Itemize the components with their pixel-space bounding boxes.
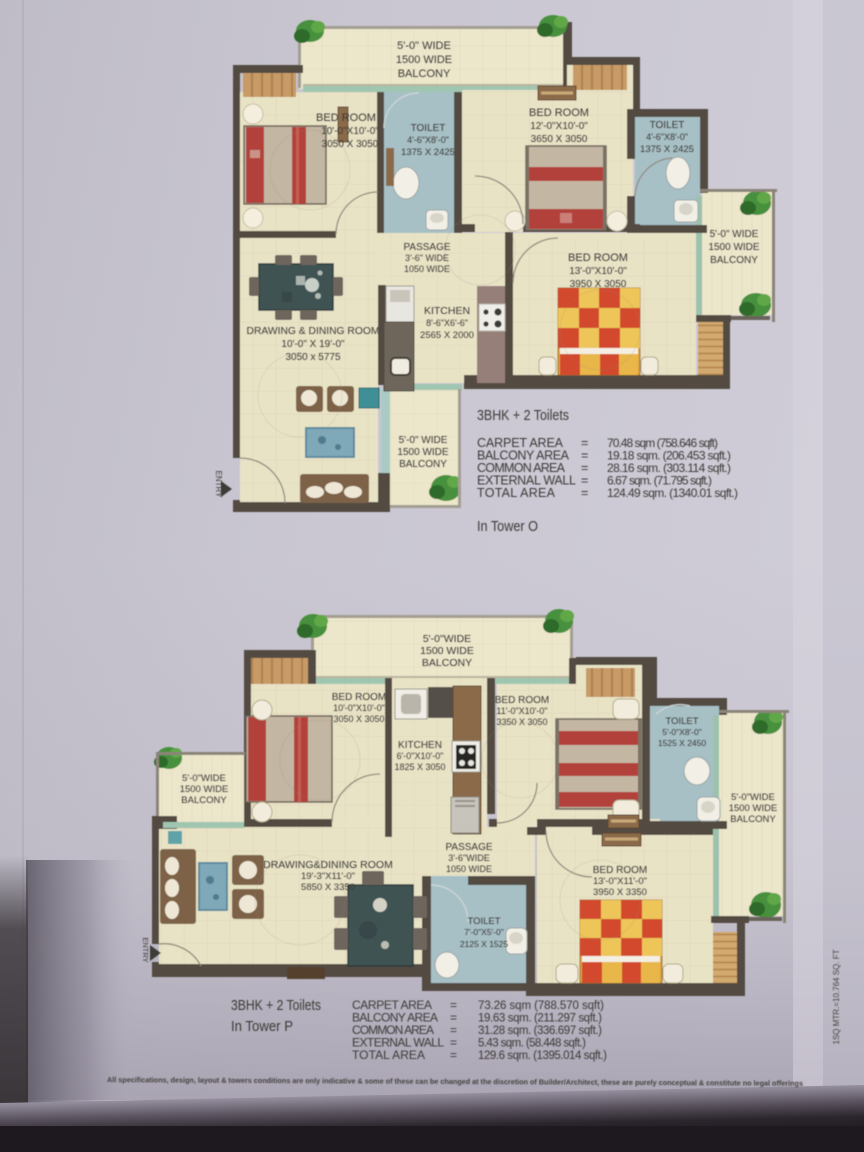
svg-text:TOILET: TOILET bbox=[665, 716, 698, 727]
svg-text:5.43 sqm. (58.448 sqft.): 5.43 sqm. (58.448 sqft.) bbox=[478, 1038, 586, 1050]
svg-text:3050 x 5775: 3050 x 5775 bbox=[285, 352, 340, 363]
svg-text:BED ROOM: BED ROOM bbox=[568, 252, 628, 264]
svg-text:11'-0"X10'-0": 11'-0"X10'-0" bbox=[496, 706, 547, 716]
svg-text:BED ROOM: BED ROOM bbox=[593, 865, 647, 876]
svg-text:3350 X 3050: 3350 X 3050 bbox=[496, 717, 547, 727]
svg-text:5'-0" WIDE: 5'-0" WIDE bbox=[397, 40, 451, 52]
svg-text:10'-0"X10'-0": 10'-0"X10'-0" bbox=[333, 703, 385, 713]
svg-text:3BHK + 2 Toilets: 3BHK + 2 Toilets bbox=[231, 997, 321, 1014]
svg-text:TOILET: TOILET bbox=[411, 123, 446, 134]
svg-text:1SQ MTR.=10.764 SQ. FT: 1SQ MTR.=10.764 SQ. FT bbox=[831, 950, 841, 1045]
svg-text:13'-0"X10'-0": 13'-0"X10'-0" bbox=[569, 266, 627, 277]
svg-text:BED ROOM: BED ROOM bbox=[495, 695, 549, 706]
svg-text:5'-0" WIDE: 5'-0" WIDE bbox=[710, 229, 759, 240]
svg-text:3'-6" WIDE: 3'-6" WIDE bbox=[405, 253, 449, 263]
svg-text:PASSAGE: PASSAGE bbox=[403, 242, 450, 253]
svg-text:1375 X 2425: 1375 X 2425 bbox=[640, 144, 694, 155]
svg-text:1500 WIDE: 1500 WIDE bbox=[729, 803, 778, 814]
svg-text:10'-0" X 19'-0": 10'-0" X 19'-0" bbox=[281, 339, 345, 350]
svg-text:1500 WIDE: 1500 WIDE bbox=[397, 447, 448, 458]
svg-text:DRAWING&DINING ROOM: DRAWING&DINING ROOM bbox=[263, 859, 393, 871]
svg-text:1500 WIDE: 1500 WIDE bbox=[396, 54, 452, 66]
svg-text:73.26 sqm (788.570 sqft): 73.26 sqm (788.570 sqft) bbox=[478, 1000, 604, 1012]
svg-text:1050 WIDE: 1050 WIDE bbox=[404, 264, 450, 274]
svg-text:19.63 sqm. (211.297 sqft.): 19.63 sqm. (211.297 sqft.) bbox=[478, 1013, 602, 1025]
svg-text:5'-0"WIDE: 5'-0"WIDE bbox=[731, 792, 775, 803]
svg-text:TOTAL AREA: TOTAL AREA bbox=[477, 486, 556, 500]
svg-text:=: = bbox=[581, 486, 588, 500]
svg-text:3050 X 3050: 3050 X 3050 bbox=[322, 139, 379, 150]
svg-text:1500 WIDE: 1500 WIDE bbox=[708, 242, 759, 253]
svg-text:1500 WIDE: 1500 WIDE bbox=[180, 784, 229, 795]
svg-text:1825 X 3050: 1825 X 3050 bbox=[394, 762, 445, 772]
svg-text:10'-0"X10'-0": 10'-0"X10'-0" bbox=[321, 126, 379, 137]
svg-text:DRAWING & DINING ROOM: DRAWING & DINING ROOM bbox=[247, 326, 380, 337]
svg-text:6'-0"X10'-0": 6'-0"X10'-0" bbox=[397, 751, 444, 761]
svg-text:3650 X 3050: 3650 X 3050 bbox=[531, 134, 588, 145]
svg-text:31.28 sqm. (336.697 sqft.): 31.28 sqm. (336.697 sqft.) bbox=[478, 1025, 602, 1037]
svg-text:In Tower O: In Tower O bbox=[477, 518, 538, 535]
svg-text:1500 WIDE: 1500 WIDE bbox=[420, 645, 474, 657]
svg-text:BALCONY: BALCONY bbox=[398, 68, 451, 80]
svg-text:=: = bbox=[450, 1048, 457, 1062]
svg-text:BALCONY: BALCONY bbox=[422, 657, 472, 669]
svg-text:124.49 sqm. (1340.01 sqft.): 124.49 sqm. (1340.01 sqft.) bbox=[607, 486, 738, 500]
svg-text:TOILET: TOILET bbox=[650, 120, 685, 131]
svg-text:ENTRY: ENTRY bbox=[214, 471, 223, 499]
svg-text:3950 X 3350: 3950 X 3350 bbox=[593, 887, 647, 898]
svg-text:2125 X 1525: 2125 X 1525 bbox=[460, 939, 508, 949]
svg-text:1525 X 2450: 1525 X 2450 bbox=[658, 738, 706, 748]
svg-text:2565 X 2000: 2565 X 2000 bbox=[420, 330, 474, 341]
svg-text:KITCHEN: KITCHEN bbox=[398, 740, 442, 751]
svg-text:BALCONY: BALCONY bbox=[181, 795, 227, 806]
svg-text:19'-3"X11'-0": 19'-3"X11'-0" bbox=[301, 871, 355, 882]
svg-text:BED ROOM: BED ROOM bbox=[332, 692, 386, 703]
svg-text:BALCONY: BALCONY bbox=[710, 255, 758, 266]
svg-text:In Tower P: In Tower P bbox=[231, 1018, 293, 1035]
svg-text:KITCHEN: KITCHEN bbox=[424, 305, 470, 317]
svg-text:3950 X 3050: 3950 X 3050 bbox=[570, 279, 627, 290]
svg-text:BED ROOM: BED ROOM bbox=[529, 107, 589, 119]
svg-text:BALCONY: BALCONY bbox=[730, 814, 776, 825]
svg-text:3050 X 3050: 3050 X 3050 bbox=[333, 714, 384, 724]
svg-text:8'-6"X6'-6": 8'-6"X6'-6" bbox=[426, 318, 468, 328]
svg-text:13'-0"X11'-0": 13'-0"X11'-0" bbox=[593, 876, 647, 887]
svg-text:BALCONY: BALCONY bbox=[399, 459, 447, 470]
svg-text:1375 X 2425: 1375 X 2425 bbox=[401, 147, 455, 158]
svg-text:5'-0"WIDE: 5'-0"WIDE bbox=[423, 633, 471, 645]
svg-text:3BHK + 2 Toilets: 3BHK + 2 Toilets bbox=[477, 407, 569, 424]
svg-text:TOILET: TOILET bbox=[467, 916, 500, 927]
svg-text:PASSAGE: PASSAGE bbox=[445, 842, 492, 853]
svg-text:4'-6"X8'-0": 4'-6"X8'-0" bbox=[407, 135, 449, 145]
svg-text:12'-0"X10'-0": 12'-0"X10'-0" bbox=[530, 121, 588, 132]
svg-text:5850 X 3350: 5850 X 3350 bbox=[301, 882, 355, 893]
svg-text:3'-6"WIDE: 3'-6"WIDE bbox=[448, 853, 489, 863]
svg-text:1050 WIDE: 1050 WIDE bbox=[446, 864, 492, 874]
svg-text:BED ROOM: BED ROOM bbox=[316, 112, 376, 124]
svg-text:5'-0"WIDE: 5'-0"WIDE bbox=[182, 773, 226, 784]
svg-text:5'-0"X8'-0": 5'-0"X8'-0" bbox=[662, 727, 702, 737]
svg-text:ENTRY: ENTRY bbox=[141, 937, 150, 962]
svg-text:4'-6"X8'-0": 4'-6"X8'-0" bbox=[646, 132, 688, 142]
svg-text:7'-0"X5'-0": 7'-0"X5'-0" bbox=[464, 927, 504, 937]
svg-text:TOTAL AREA: TOTAL AREA bbox=[352, 1048, 425, 1062]
svg-text:5'-0" WIDE: 5'-0" WIDE bbox=[399, 435, 448, 446]
svg-text:129.6 sqm. (1395.014 sqft.): 129.6 sqm. (1395.014 sqft.) bbox=[478, 1050, 607, 1062]
